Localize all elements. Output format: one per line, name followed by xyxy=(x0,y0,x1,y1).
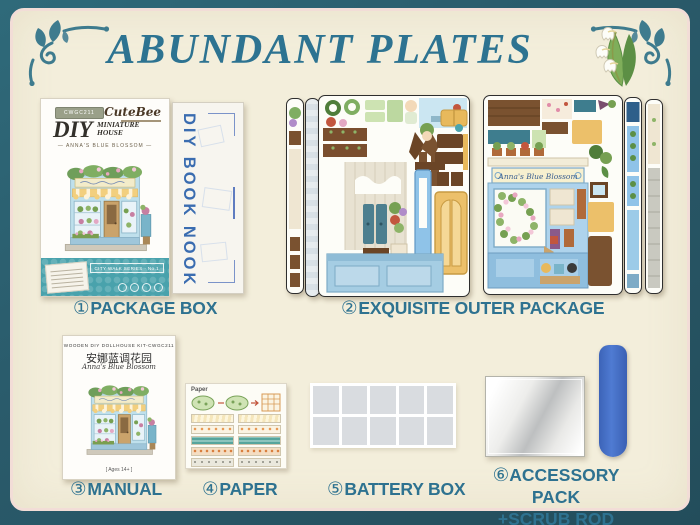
lily-flower-icon xyxy=(592,22,644,88)
label-manual: ③MANUAL xyxy=(70,478,162,500)
spine-title: DIY BOOK NOOK xyxy=(179,113,198,287)
certification-icons xyxy=(118,283,163,292)
label-accessory-pack: ⑥ACCESSORY PACK +SCRUB ROD xyxy=(473,464,639,525)
book-nook-spine-image: DIY BOOK NOOK xyxy=(172,102,244,294)
book-doodle xyxy=(202,187,233,211)
label-number: ① xyxy=(73,297,89,318)
label-number: ④ xyxy=(202,478,218,499)
label-paper: ④PAPER xyxy=(202,478,277,500)
product-theme: — ANNA'S BLUE BLOSSOM — xyxy=(41,143,169,149)
plate-sheet-strip xyxy=(286,98,304,294)
flower-shop-illustration xyxy=(50,151,160,255)
frame-bracket xyxy=(208,113,235,136)
series-tag: CITY WALK SERIES · No.1 xyxy=(90,263,164,273)
label-line2: +SCRUB ROD xyxy=(473,508,639,525)
label-text: BATTERY BOX xyxy=(344,479,465,499)
plate-sheet-strip xyxy=(645,99,663,294)
plate-sheet-main-left xyxy=(318,95,470,297)
manual-age-line: [ Ages 14+ ] xyxy=(63,467,175,473)
shop-sign-text: Anna's Blue Blossom xyxy=(497,172,577,181)
plate-sheet-main-right: Anna's Blue Blossom xyxy=(483,95,623,295)
paper-diagram xyxy=(190,393,282,413)
frame-bracket xyxy=(208,260,235,283)
label-outer-package: ②EXQUISITE OUTER PACKAGE xyxy=(341,297,604,319)
label-number: ⑤ xyxy=(327,478,343,499)
product-subtitle-line2: HOUSE xyxy=(97,128,123,137)
label-text: ACCESSORY PACK xyxy=(509,465,619,507)
label-battery-box: ⑤BATTERY BOX xyxy=(327,478,465,500)
box-info-card xyxy=(45,261,89,294)
paper-pattern-strips xyxy=(191,414,281,467)
label-number: ③ xyxy=(70,478,86,499)
label-number: ⑥ xyxy=(493,464,510,485)
label-text: PACKAGE BOX xyxy=(90,298,217,318)
brand-logo: CuteBee xyxy=(104,105,161,119)
plate-sheet-strip xyxy=(624,97,642,294)
box-bottom-band: CITY WALK SERIES · No.1 xyxy=(41,258,169,296)
frame-line xyxy=(233,187,235,219)
label-text: MANUAL xyxy=(87,479,162,499)
package-box-image: CWGC211 CuteBee DIY MINIATURE HOUSE — AN… xyxy=(40,98,170,297)
label-text: PAPER xyxy=(219,479,277,499)
product-subtitle: MINIATURE HOUSE xyxy=(97,121,147,137)
manual-image: WOODEN DIY DOLLHOUSE KIT-CWGC211 安娜蓝调花园 … xyxy=(62,335,176,480)
manual-title-en: Anna's Blue Blossom xyxy=(63,363,175,371)
battery-box-image xyxy=(310,383,456,448)
label-number: ② xyxy=(341,297,357,318)
label-text: EXQUISITE OUTER PACKAGE xyxy=(358,298,604,318)
paper-sheet-image: Paper xyxy=(185,383,287,469)
label-line1: ⑥ACCESSORY PACK xyxy=(473,464,639,508)
product-title: DIY xyxy=(53,117,93,143)
scrub-rod-image xyxy=(599,345,627,457)
label-package-box: ①PACKAGE BOX xyxy=(73,297,217,319)
page-title: ABUNDANT PLATES xyxy=(0,26,640,74)
page-frame: ABUNDANT PLATES CWGC211 CuteBee DIY MINI… xyxy=(0,0,700,525)
flower-shop-illustration xyxy=(79,374,159,458)
manual-kit-line: WOODEN DIY DOLLHOUSE KIT-CWGC211 xyxy=(63,343,175,348)
accessory-pack-image xyxy=(485,376,585,457)
